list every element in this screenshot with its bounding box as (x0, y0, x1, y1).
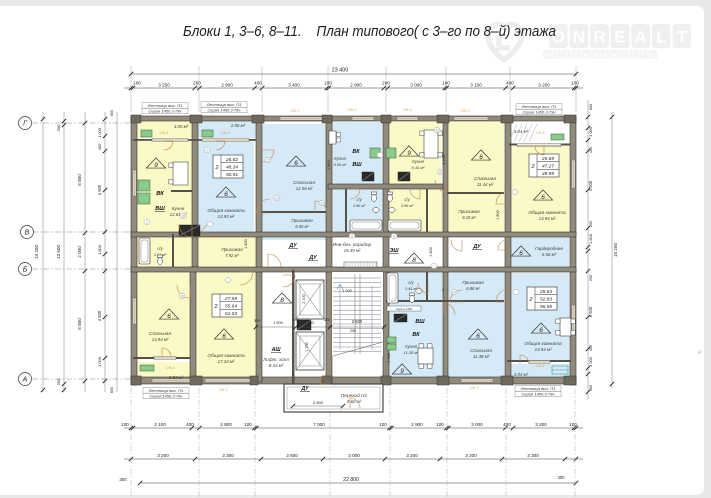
svg-text:N: N (573, 28, 585, 47)
svg-text:Лестница вых. П1: Лестница вых. П1 (148, 388, 184, 393)
svg-text:600: 600 (589, 104, 593, 110)
svg-text:1 200: 1 200 (342, 289, 352, 293)
svg-text:Прихожая: Прихожая (462, 280, 484, 285)
svg-text:400: 400 (589, 147, 593, 153)
svg-text:ВШ: ВШ (155, 206, 165, 212)
svg-text:100: 100 (442, 81, 450, 86)
svg-text:Серия 1450.3-79ч: Серия 1450.3-79ч (522, 392, 555, 397)
svg-text:55.64: 55.64 (225, 304, 237, 310)
svg-text:ВК: ВК (412, 332, 420, 338)
svg-text:ОК-4: ОК-4 (165, 365, 175, 370)
svg-text:4 500: 4 500 (97, 184, 102, 195)
svg-text:1 800: 1 800 (97, 244, 102, 255)
svg-text:В: В (25, 230, 30, 237)
svg-text:ВК: ВК (156, 191, 164, 197)
svg-text:200: 200 (382, 81, 390, 86)
svg-text:3 700: 3 700 (442, 155, 446, 165)
svg-text:400: 400 (589, 345, 593, 351)
svg-text:100: 100 (571, 81, 579, 86)
svg-text:2 900: 2 900 (221, 83, 233, 88)
svg-text:100: 100 (379, 422, 387, 427)
svg-text:Лестница вых. П1: Лестница вых. П1 (147, 103, 183, 108)
svg-text:400: 400 (503, 422, 511, 427)
svg-text:1 000: 1 000 (97, 356, 102, 367)
svg-text:3 600: 3 600 (286, 453, 298, 458)
svg-text:100: 100 (133, 81, 141, 86)
svg-text:9.06 м²: 9.06 м² (334, 162, 348, 167)
svg-text:с/у: с/у (404, 197, 410, 202)
svg-text:6: 6 (476, 333, 480, 340)
svg-text:19.39 м²: 19.39 м² (344, 248, 361, 253)
svg-text:ВШ: ВШ (352, 162, 362, 168)
svg-text:6: 6 (167, 313, 171, 320)
svg-text:8: 8 (412, 257, 416, 264)
svg-text:3 200: 3 200 (465, 453, 477, 458)
svg-text:Лестница вых. П1: Лестница вых. П1 (521, 104, 557, 109)
svg-text:Прихожая: Прихожая (291, 218, 313, 223)
svg-text:Лестница вых. П1: Лестница вых. П1 (206, 102, 242, 107)
svg-text:2: 2 (213, 304, 217, 310)
svg-text:7.92 м²: 7.92 м² (225, 253, 239, 258)
svg-text:1 750: 1 750 (305, 342, 309, 352)
svg-text:Серия 1450.3-79ч: Серия 1450.3-79ч (149, 109, 182, 114)
svg-text:С: С (632, 53, 637, 59)
svg-text:3 250: 3 250 (158, 83, 170, 88)
svg-text:300: 300 (558, 475, 566, 480)
svg-text:200: 200 (589, 221, 593, 227)
svg-text:ОК-4: ОК-4 (535, 363, 545, 368)
svg-text:250: 250 (193, 81, 201, 86)
svg-text:6: 6 (519, 250, 523, 257)
svg-text:Серия 1450.3-79ч: Серия 1450.3-79ч (150, 394, 183, 399)
svg-text:1 800: 1 800 (327, 160, 331, 170)
svg-text:13.95 м²: 13.95 м² (218, 214, 235, 219)
svg-text:1 700: 1 700 (304, 321, 314, 325)
svg-text:8.50 м²: 8.50 м² (295, 224, 309, 229)
svg-text:ОК-3: ОК-3 (402, 107, 412, 112)
svg-text:200: 200 (589, 275, 593, 281)
svg-text:100: 100 (324, 81, 332, 86)
svg-text:R: R (593, 28, 605, 47)
svg-text:13 600: 13 600 (56, 245, 61, 259)
svg-text:8: 8 (280, 297, 284, 304)
svg-text:100: 100 (569, 422, 577, 427)
svg-text:с/у: с/у (157, 246, 163, 251)
svg-text:600: 600 (110, 387, 114, 393)
svg-text:12: 12 (435, 129, 439, 133)
svg-text:2 500: 2 500 (313, 400, 324, 405)
svg-text:6: 6 (541, 194, 545, 201)
svg-text:1 800: 1 800 (496, 210, 500, 220)
svg-text:О: О (622, 53, 627, 59)
svg-text:9: 9 (154, 162, 158, 169)
svg-text:1 600: 1 600 (429, 247, 433, 257)
svg-text:2.94 м²: 2.94 м² (168, 375, 184, 380)
svg-text:Прихожая: Прихожая (221, 247, 243, 252)
svg-text:9: 9 (400, 368, 404, 375)
svg-text:Прихожая: Прихожая (458, 209, 480, 214)
svg-text:52.83: 52.83 (540, 297, 552, 303)
svg-text:400: 400 (186, 422, 194, 427)
svg-text:Ж: Ж (592, 53, 599, 59)
svg-text:9.60 м²: 9.60 м² (347, 399, 362, 404)
svg-text:6: 6 (479, 154, 483, 161)
svg-text:200: 200 (350, 329, 356, 333)
svg-text:7 000: 7 000 (313, 422, 325, 427)
svg-text:9: 9 (407, 150, 411, 157)
svg-text:5 800: 5 800 (77, 318, 82, 330)
svg-text:4 500: 4 500 (588, 306, 593, 317)
svg-text:6: 6 (222, 333, 226, 340)
svg-text:И: И (603, 53, 607, 59)
svg-text:Ь: Ь (651, 53, 656, 59)
svg-text:14 200: 14 200 (34, 245, 39, 259)
svg-text:6: 6 (294, 160, 298, 167)
svg-text:6: 6 (224, 191, 228, 198)
svg-text:Кухня: Кухня (412, 159, 424, 164)
svg-text:2.86 м²: 2.86 м² (230, 123, 246, 128)
svg-text:5.56 м²: 5.56 м² (542, 252, 557, 257)
svg-text:Зг: Зг (697, 349, 702, 354)
svg-text:3 200: 3 200 (538, 83, 550, 88)
svg-text:Д: Д (564, 53, 569, 59)
svg-text:400: 400 (97, 143, 102, 150)
svg-text:Кухня: Кухня (405, 344, 417, 349)
svg-text:2 100: 2 100 (302, 294, 306, 304)
svg-text:Б: Б (23, 267, 28, 274)
svg-text:3.04 м²: 3.04 м² (514, 372, 529, 377)
svg-text:1: 1 (146, 221, 148, 225)
svg-text:3 100: 3 100 (470, 83, 482, 88)
svg-text:Лифт. холл: Лифт. холл (262, 357, 289, 362)
svg-text:ОК-4: ОК-4 (159, 130, 169, 135)
svg-text:48.34: 48.34 (226, 165, 238, 171)
svg-text:200: 200 (293, 318, 299, 322)
svg-text:13.94 м²: 13.94 м² (539, 216, 556, 221)
svg-text:5 800: 5 800 (77, 174, 82, 186)
svg-text:T: T (677, 28, 688, 47)
svg-text:ОК-4: ОК-4 (220, 130, 230, 135)
svg-text:3.96 м²: 3.96 м² (401, 204, 414, 208)
svg-text:2 900: 2 900 (350, 83, 362, 88)
svg-text:23 400: 23 400 (332, 68, 349, 74)
svg-text:с/у: с/у (408, 280, 414, 285)
svg-text:56.55: 56.55 (540, 304, 552, 310)
svg-text:10: 10 (438, 171, 442, 175)
svg-text:400: 400 (254, 81, 262, 86)
svg-text:10: 10 (275, 197, 279, 201)
svg-text:6: 6 (539, 327, 543, 334)
svg-text:A: A (635, 28, 647, 47)
svg-text:3 000: 3 000 (410, 83, 422, 88)
svg-text:13.94 м²: 13.94 м² (535, 347, 552, 352)
svg-text:L: L (656, 28, 666, 47)
svg-text:61.03: 61.03 (225, 311, 237, 317)
svg-text:200: 200 (324, 318, 330, 322)
svg-text:17.34 м²: 17.34 м² (218, 359, 235, 364)
svg-text:10: 10 (180, 295, 184, 299)
svg-text:1 000: 1 000 (588, 126, 593, 137)
svg-text:Серия 1450.3-79ч: Серия 1450.3-79ч (208, 108, 241, 113)
svg-text:1 600: 1 600 (244, 239, 248, 249)
svg-text:А: А (22, 377, 28, 384)
svg-text:10: 10 (181, 215, 185, 219)
svg-text:100: 100 (121, 422, 129, 427)
svg-text:6.88 м²: 6.88 м² (466, 286, 480, 291)
svg-text:2 900: 2 900 (411, 422, 423, 427)
svg-text:2: 2 (214, 165, 218, 171)
svg-text:ОК-3: ОК-3 (218, 387, 228, 392)
svg-text:Блоки 1, 3–6, 8–11. План т: Блоки 1, 3–6, 8–11. План типового( с 3–г… (183, 24, 556, 40)
svg-text:1 500: 1 500 (273, 321, 283, 325)
svg-text:11.44 м²: 11.44 м² (477, 182, 494, 187)
svg-text:9: 9 (393, 235, 395, 239)
svg-text:12: 12 (320, 202, 324, 206)
svg-text:3 300: 3 300 (527, 453, 539, 458)
svg-text:Е: Е (555, 53, 559, 59)
svg-text:ОК-7: ОК-7 (290, 108, 300, 113)
svg-text:300: 300 (254, 319, 260, 323)
svg-text:8.19 м²: 8.19 м² (462, 215, 476, 220)
svg-text:25.69: 25.69 (541, 156, 554, 162)
svg-text:1 000: 1 000 (97, 127, 102, 138)
svg-text:22 800: 22 800 (343, 477, 359, 483)
svg-text:100: 100 (244, 422, 252, 427)
svg-text:1 000: 1 000 (588, 356, 593, 367)
svg-text:Кухня: Кухня (334, 156, 346, 161)
svg-text:27.59: 27.59 (224, 296, 237, 302)
svg-text:Гардеробная: Гардеробная (535, 246, 563, 251)
svg-text:400: 400 (506, 81, 514, 86)
svg-text:3.96 м²: 3.96 м² (353, 204, 366, 208)
svg-text:2: 2 (528, 297, 532, 303)
svg-text:26.82: 26.82 (225, 157, 238, 163)
svg-text:13.94 м²: 13.94 м² (152, 337, 169, 342)
svg-text:9: 9 (351, 235, 353, 239)
svg-text:11.38 м²: 11.38 м² (473, 354, 490, 359)
svg-text:2 900: 2 900 (220, 422, 232, 427)
svg-text:3.09 м²: 3.09 м² (174, 124, 189, 129)
svg-text:25.63: 25.63 (539, 289, 552, 295)
svg-text:600: 600 (110, 110, 114, 116)
svg-text:Лестница вых. П1: Лестница вых. П1 (520, 386, 556, 391)
svg-text:4 500: 4 500 (97, 310, 102, 321)
svg-text:300: 300 (56, 378, 61, 385)
svg-text:3 200: 3 200 (157, 453, 169, 458)
svg-text:300: 300 (589, 385, 593, 391)
svg-text:11.28 м²: 11.28 м² (404, 350, 420, 355)
svg-text:1 800: 1 800 (588, 233, 593, 244)
svg-text:ОК-3: ОК-3 (347, 107, 357, 112)
svg-text:1 400: 1 400 (387, 353, 391, 363)
svg-text:ОК-4: ОК-4 (535, 130, 545, 135)
svg-text:100: 100 (436, 422, 444, 427)
svg-text:3 200: 3 200 (535, 422, 547, 427)
svg-text:с/у: с/у (356, 197, 362, 202)
svg-text:2 600: 2 600 (352, 319, 363, 324)
svg-text:Серия 1450: Серия 1450 (396, 307, 413, 311)
svg-text:2: 2 (530, 164, 534, 170)
svg-text:8.43 м²: 8.43 м² (269, 363, 284, 368)
svg-text:3 000: 3 000 (348, 453, 360, 458)
svg-text:1: 1 (206, 149, 208, 153)
svg-text:9.44 м²: 9.44 м² (412, 165, 426, 170)
svg-text:ОК-3: ОК-3 (460, 108, 470, 113)
svg-text:12.56 м²: 12.56 м² (296, 186, 313, 191)
svg-text:ОК-3: ОК-3 (469, 385, 479, 390)
svg-text:10: 10 (452, 291, 456, 295)
svg-text:3 400: 3 400 (288, 83, 300, 88)
svg-text:ВШ: ВШ (415, 319, 425, 325)
svg-text:В: В (574, 53, 579, 59)
svg-text:3 000: 3 000 (471, 422, 483, 427)
svg-text:2 000: 2 000 (77, 246, 82, 258)
svg-text:3.04 м²: 3.04 м² (514, 129, 529, 134)
svg-text:50.91: 50.91 (226, 172, 238, 178)
svg-text:300: 300 (56, 124, 61, 131)
svg-text:И: И (584, 53, 588, 59)
svg-text:15 200: 15 200 (613, 243, 618, 257)
svg-text:3 100: 3 100 (154, 422, 166, 427)
svg-text:Н: Н (545, 53, 549, 59)
svg-text:М: М (612, 53, 617, 59)
svg-text:E: E (614, 28, 625, 47)
svg-text:12: 12 (266, 159, 270, 163)
svg-text:3 300: 3 300 (222, 453, 234, 458)
svg-text:Серия 1450.3-79ч: Серия 1450.3-79ч (523, 110, 556, 115)
svg-text:300: 300 (119, 477, 127, 482)
svg-text:3 200: 3 200 (406, 453, 418, 458)
svg-text:49.99: 49.99 (542, 171, 554, 177)
svg-text:47.27: 47.27 (542, 164, 554, 170)
svg-text:Т: Т (641, 53, 645, 59)
svg-text:ВК: ВК (352, 149, 360, 155)
svg-text:4 500: 4 500 (588, 180, 593, 191)
